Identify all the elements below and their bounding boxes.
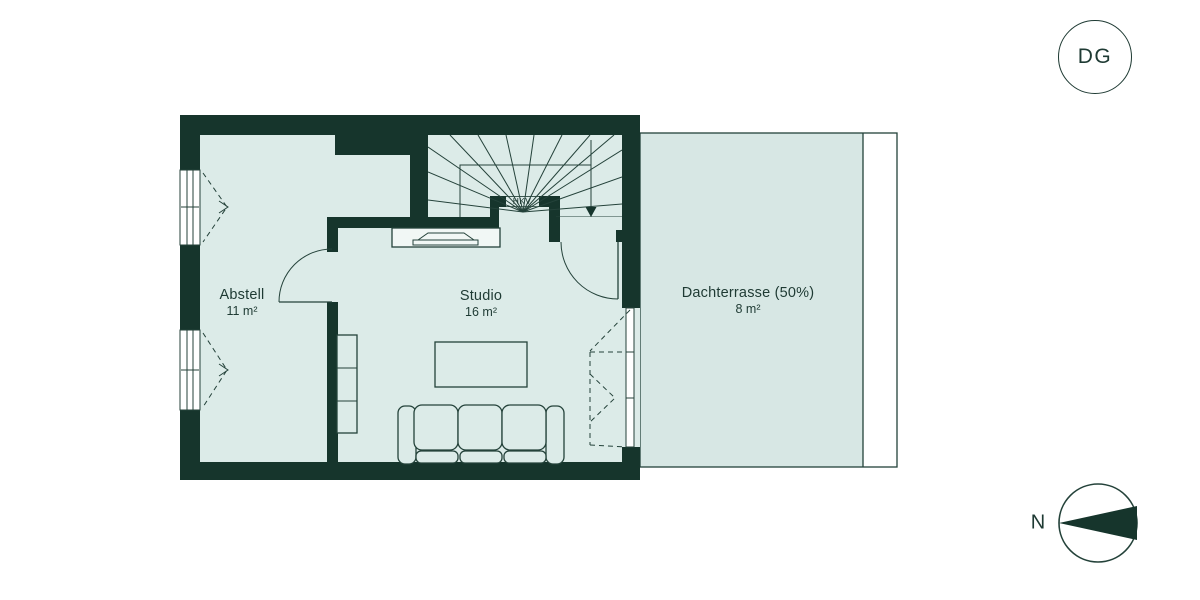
floorplan-canvas: Abstell 11 m² Studio 16 m² Dachterrasse … xyxy=(0,0,1200,600)
sofa-armrest-right xyxy=(546,406,564,464)
sideboard xyxy=(392,228,500,247)
floor-badge: DG xyxy=(1058,20,1132,94)
wall-stair-left xyxy=(410,135,428,228)
room-label-dachterrasse: Dachterrasse (50%) 8 m² xyxy=(682,285,815,317)
wall-studio-top xyxy=(327,217,497,228)
hkv-label: HKV xyxy=(513,196,531,206)
sofa-back-cushion xyxy=(460,451,502,463)
wall-abstell-stub xyxy=(327,217,338,252)
floorplan-drawing xyxy=(0,0,1200,600)
floor-badge-label: DG xyxy=(1078,45,1113,69)
compass-north-label: N xyxy=(1031,512,1045,535)
sofa xyxy=(398,405,564,464)
room-area: 8 m² xyxy=(682,302,815,317)
sofa-seat xyxy=(502,405,546,450)
shelf xyxy=(337,335,357,433)
wall-chimney-chunk xyxy=(335,135,410,155)
room-area: 16 m² xyxy=(460,305,502,320)
room-area: 11 m² xyxy=(220,304,265,319)
room-name: Dachterrasse (50%) xyxy=(682,285,815,301)
room-label-abstell: Abstell 11 m² xyxy=(220,287,265,319)
sofa-seat xyxy=(458,405,502,450)
sofa-armrest-left xyxy=(398,406,416,464)
room-name: Studio xyxy=(460,288,502,304)
compass-needle-icon xyxy=(1059,506,1137,540)
wall-hkv-right xyxy=(549,196,560,242)
sofa-back-cushion xyxy=(504,451,546,463)
sofa-seat xyxy=(414,405,458,450)
room-label-studio: Studio 16 m² xyxy=(460,288,502,320)
table xyxy=(435,342,527,387)
room-name: Abstell xyxy=(220,287,265,303)
sofa-back-cushion xyxy=(416,451,458,463)
wall-door-jamb xyxy=(616,230,622,242)
terrace-edge-strip xyxy=(863,133,897,467)
compass xyxy=(1059,484,1137,562)
